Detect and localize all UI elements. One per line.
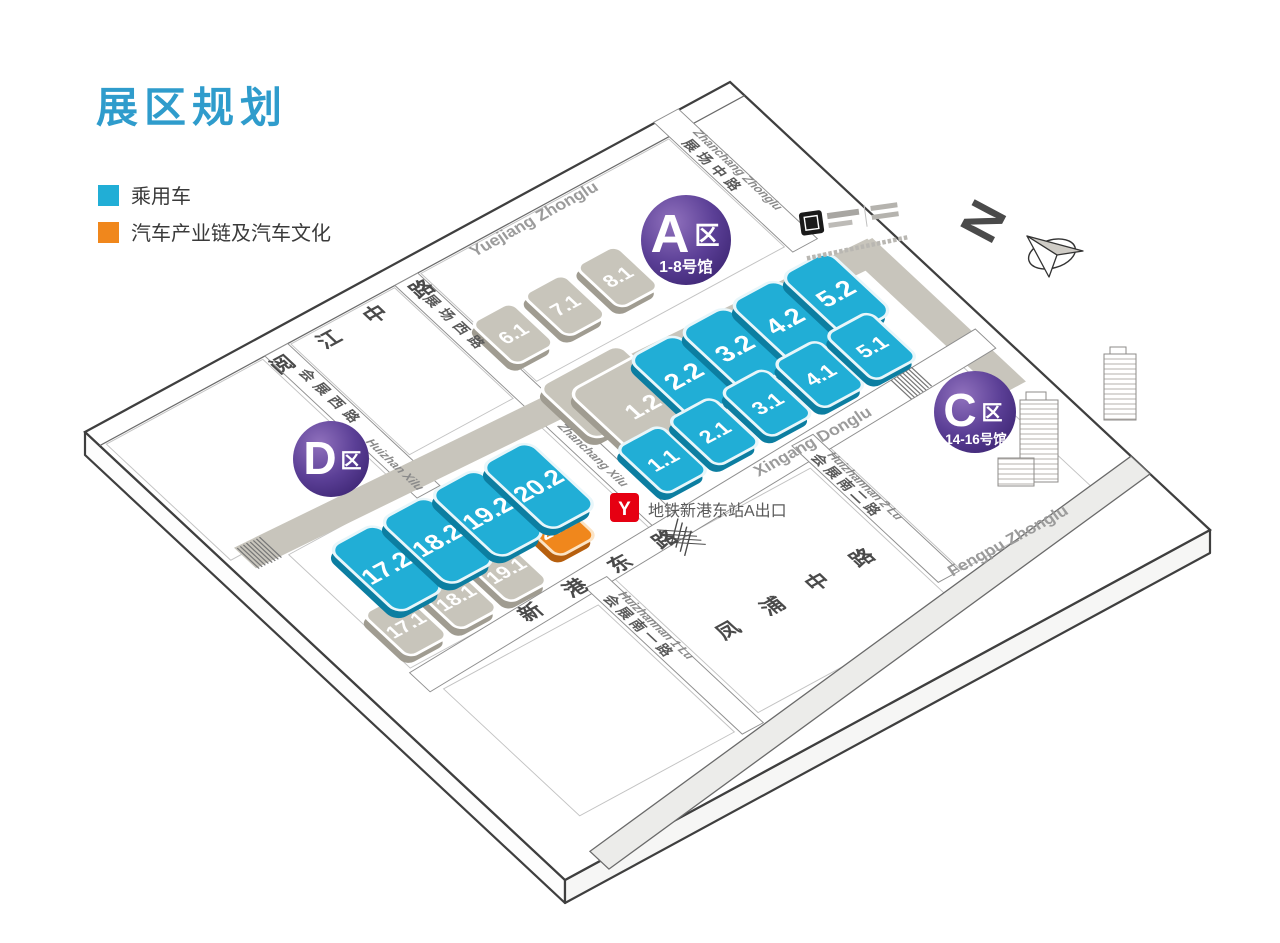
compass-arrow [1025, 234, 1083, 277]
zone-a-letter: A [651, 204, 690, 264]
north-label: N [950, 191, 1019, 251]
zone-badge-a: A 区 1-8号馆 [641, 195, 731, 285]
legend: 乘用车 汽车产业链及汽车文化 [98, 185, 331, 245]
legend-swatch-passenger [98, 185, 119, 206]
metro-station-label: 地铁新港东站A出口 [648, 502, 787, 520]
zone-a-qu: 区 [694, 222, 719, 250]
exhibition-map-page: 1.2 6.1 7.1 8.1 2.2 3.2 [0, 0, 1280, 943]
zone-a-subtitle: 1-8号馆 [659, 257, 712, 276]
zone-badge-d: D 区 [293, 421, 369, 497]
legend-swatch-culture [98, 222, 119, 243]
legend-label-culture: 汽车产业链及汽车文化 [131, 222, 331, 245]
zone-c-subtitle: 14-16号馆 [945, 431, 1007, 447]
exhibition-map-canvas: 1.2 6.1 7.1 8.1 2.2 3.2 [0, 0, 1280, 943]
zone-d-letter: D [303, 432, 336, 484]
sponsor-logo-icon [799, 210, 825, 236]
compass: N [950, 191, 1083, 277]
zone-d-qu: 区 [341, 450, 362, 473]
zone-badge-c: C 区 14-16号馆 [934, 371, 1016, 453]
svg-text:Y: Y [618, 499, 631, 520]
page-title: 展区规划 [96, 84, 288, 131]
building-illustration-2 [1104, 347, 1136, 420]
map-plate: 1.2 6.1 7.1 8.1 2.2 3.2 [84, 81, 1219, 888]
zone-c-qu: 区 [982, 402, 1003, 425]
zone-c-letter: C [943, 384, 976, 436]
legend-label-passenger: 乘用车 [131, 185, 191, 208]
